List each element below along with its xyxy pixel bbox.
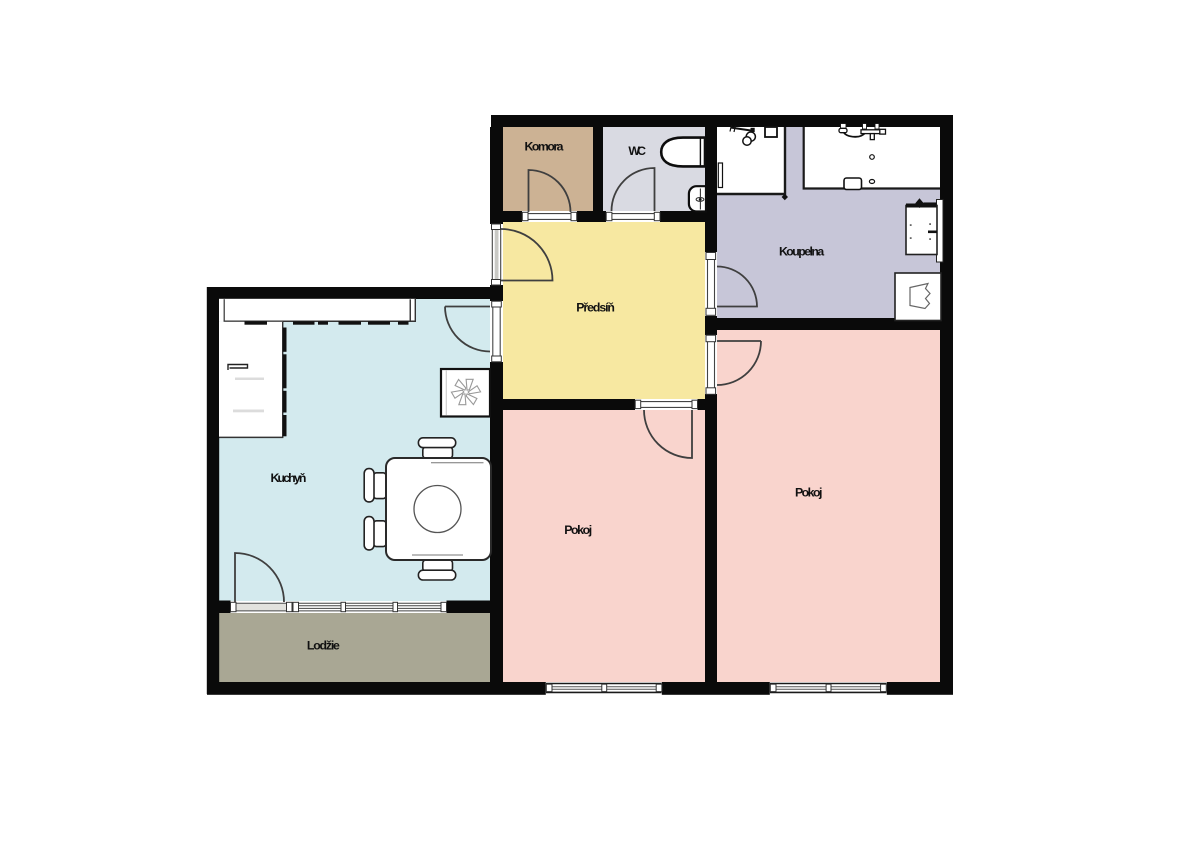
- svg-text:Pokoj: Pokoj: [795, 485, 823, 499]
- svg-text:Předsíň: Předsíň: [576, 300, 615, 314]
- svg-text:Kuchyň: Kuchyň: [270, 471, 306, 485]
- svg-text:WC: WC: [628, 144, 646, 158]
- svg-text:Koupelna: Koupelna: [779, 244, 824, 258]
- svg-text:Pokoj: Pokoj: [564, 523, 592, 537]
- svg-text:Komora: Komora: [525, 139, 564, 153]
- svg-text:Lodžie: Lodžie: [307, 638, 340, 652]
